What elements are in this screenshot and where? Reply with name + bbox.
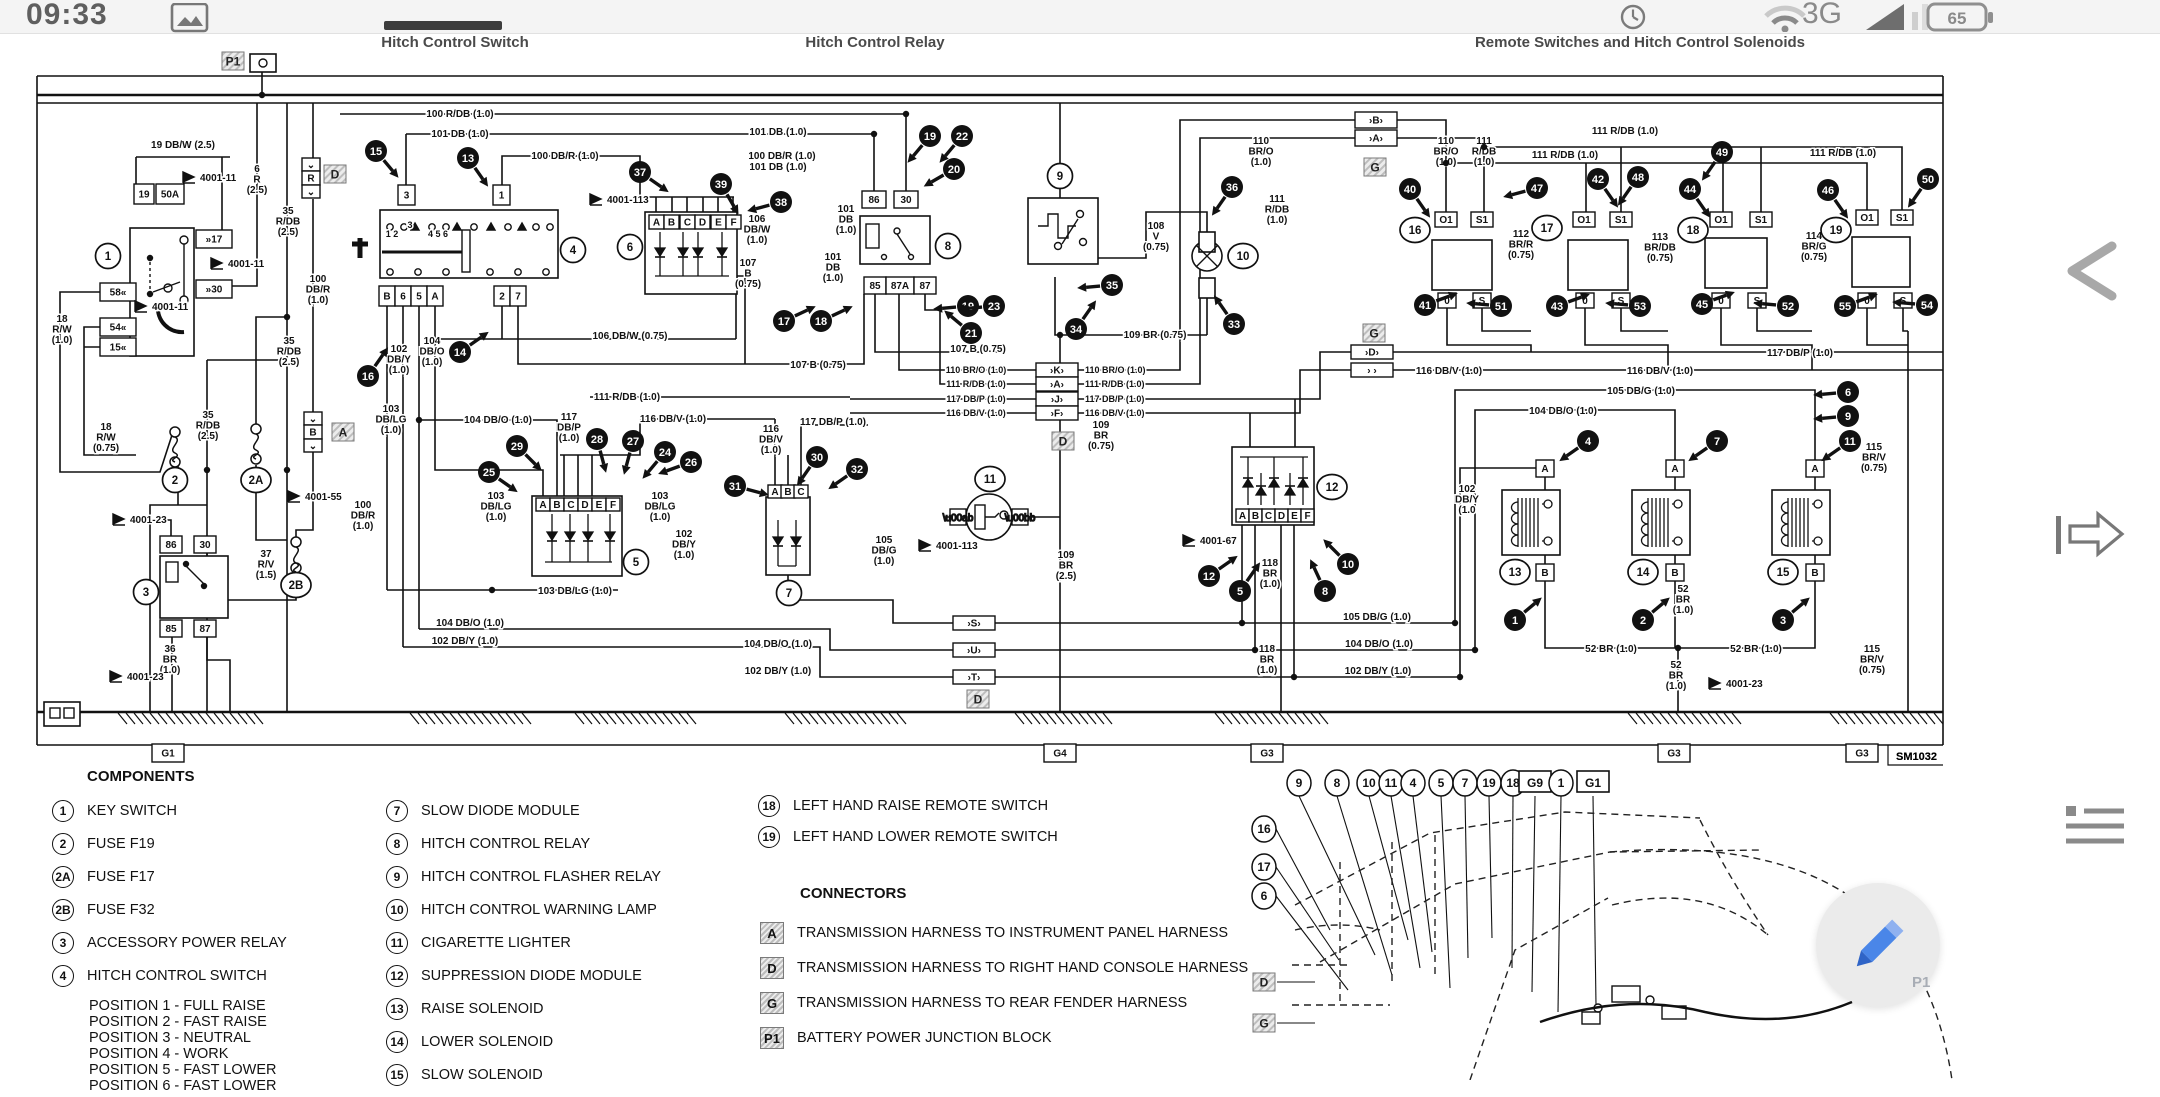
pin-label: B (784, 487, 791, 498)
pin-label: 85 (869, 281, 881, 292)
pin-label: 15« (110, 343, 127, 354)
part-callout-number: 32 (851, 464, 863, 476)
clock-icon (1620, 4, 1648, 32)
component-callout-number: 14 (1637, 567, 1650, 579)
part-callout-number: 21 (965, 328, 977, 340)
connector-tag: G (760, 992, 784, 1014)
wire-label: 111R/DB(1.0) (1265, 194, 1289, 226)
part-callout-number: 26 (685, 457, 697, 469)
wire-label: 19 DB/W (2.5) (151, 140, 215, 151)
junction-dot (416, 417, 422, 423)
wire-label: 104 DB/O (1.0) (1529, 406, 1597, 417)
callout-arrow (1217, 197, 1225, 208)
wire-label: 100 R/DB (1.0) (426, 109, 493, 120)
part-callout-number: 20 (948, 164, 960, 176)
part-callout-number: 15 (370, 146, 382, 158)
leader-line (1512, 796, 1513, 968)
component-callout-number: 19 (1830, 225, 1843, 237)
legend-item: 15SLOW SOLENOID (386, 1064, 661, 1086)
component-callout-number: 10 (1237, 251, 1250, 263)
splice-triangle-icon (110, 671, 122, 682)
component-callout-number: 2A (249, 475, 264, 487)
junction-dot (1452, 620, 1458, 626)
illustration-callout-number: 8 (1334, 776, 1341, 790)
wire-label: 104 DB/O (1.0) (436, 618, 504, 629)
part-callout-number: 8 (1322, 586, 1328, 598)
callout-arrow (1822, 393, 1836, 394)
fuse-end (170, 427, 180, 437)
wire-label: 111R/DB(1.0) (1472, 136, 1496, 168)
callout-arrow (1913, 189, 1921, 200)
pin-label: B (383, 292, 390, 303)
leader-line (1441, 796, 1450, 988)
callout-arrow (1083, 308, 1091, 319)
legend-item-number: 4 (52, 965, 74, 987)
wire-label: 109 BR (0.75) (1124, 330, 1187, 341)
part-callout-number: 30 (811, 452, 823, 464)
wire-label: 116 DB/V (1.0) (1416, 366, 1482, 377)
pin-label: E (1291, 511, 1298, 522)
wire-label: 106 DB/W (0.75) (592, 331, 667, 342)
pin-label: B (1252, 511, 1259, 522)
illustration-callout-number: 7 (1462, 776, 1469, 790)
wire-label: 115BR/V(0.75) (1861, 442, 1887, 474)
wire-label: 117 DB/P (1.0) (1767, 348, 1833, 359)
pin-label: B (1671, 568, 1678, 579)
part-callout-number: 34 (1070, 324, 1083, 336)
pin-label: ›T› (968, 673, 981, 684)
illustration-p1-label: P1 (1912, 974, 1930, 991)
component-callout-number: 1 (105, 251, 112, 263)
callout-arrow (836, 476, 847, 484)
wire-label: 116 DB/V (1.0) (640, 414, 706, 425)
part-callout-number: 49 (1716, 147, 1728, 159)
wire-label: 107 B (0.75) (950, 344, 1006, 355)
connector-legend-item: P1BATTERY POWER JUNCTION BLOCK (760, 1027, 1248, 1049)
pin-label: 54« (110, 323, 127, 334)
pin-label: S1 (1755, 215, 1768, 226)
callout-arrow (1697, 199, 1705, 210)
battery-level: 65 (1948, 9, 1967, 28)
callout-arrow (1829, 448, 1840, 456)
component-callout-number: 8 (945, 241, 952, 253)
pin-label: ›B› (1369, 116, 1383, 127)
connector-legend-item: GTRANSMISSION HARNESS TO REAR FENDER HAR… (760, 992, 1248, 1014)
illustration-callout-number: 1 (1558, 776, 1565, 790)
wire-label: 4001-23 (1726, 679, 1763, 690)
junction-dot (204, 467, 210, 473)
callout-arrow (600, 451, 604, 465)
junction-dot (1291, 674, 1297, 680)
part-callout-number: 48 (1632, 172, 1644, 184)
wire-label: 37R/V(1.5) (256, 549, 277, 581)
pin-label: 30 (199, 540, 211, 551)
chevron-left-icon[interactable] (2072, 246, 2112, 296)
legend-item-number: 7 (386, 800, 408, 822)
connector-tag: D (760, 957, 784, 979)
leader-line (1593, 796, 1596, 1005)
pin-label: S1 (1476, 215, 1489, 226)
connector-tag: P1 (760, 1027, 784, 1049)
ground-symbols (118, 713, 1943, 724)
pin-label: O1 (1714, 215, 1728, 226)
coil-terminal (1544, 500, 1552, 508)
legend-item-number: 12 (386, 965, 408, 987)
leader-line (1558, 796, 1561, 1012)
part-callout-number: 2 (1640, 615, 1646, 627)
connector-tag-label: D (974, 693, 983, 707)
illustration-callout-number: 10 (1362, 776, 1376, 790)
callout-arrowhead (622, 465, 631, 475)
junction-dot (903, 111, 909, 117)
legend-sub-line: POSITION 5 - FAST LOWER (89, 1062, 287, 1078)
connector-label: TRANSMISSION HARNESS TO REAR FENDER HARN… (797, 995, 1187, 1011)
pin-label: A (771, 487, 778, 498)
wire-label: 105 DB/G (1.0) (1607, 386, 1675, 397)
junction-dot (1481, 144, 1487, 150)
callout-arrow (945, 145, 954, 156)
callout-arrowhead (1466, 299, 1475, 308)
svg-text:\u00bb: \u00bb (1005, 513, 1036, 524)
wire-label: 1 2 (386, 229, 399, 239)
pin-label: S1 (1615, 215, 1628, 226)
wire-label: 117DB/P(1.0) (557, 412, 581, 444)
callout-arrow (1614, 304, 1628, 305)
callout-arrow (931, 175, 943, 182)
header-hitch-control-switch: Hitch Control Switch (381, 34, 529, 51)
connector-tag-label: D (1260, 976, 1269, 990)
legend-item: 4HITCH CONTROL SWITCH (52, 965, 287, 987)
wire-label: 112BR/R(0.75) (1508, 229, 1534, 261)
callout-arrow (756, 205, 770, 209)
junction-dot (1675, 645, 1681, 651)
callout-arrowhead (599, 463, 608, 473)
callout-arrow (1822, 417, 1836, 418)
part-callout-number: 38 (775, 197, 787, 209)
part-callout-number: 29 (511, 441, 523, 453)
illustration-callout-number: 5 (1438, 776, 1445, 790)
wire-label: 52BR(1.0) (1666, 660, 1687, 692)
callout-arrow (1762, 304, 1776, 305)
components-column-1: 1KEY SWITCH2FUSE F192AFUSE F172BFUSE F32… (52, 800, 287, 1094)
legend-item: 2BFUSE F32 (52, 899, 287, 921)
wire-label: 104 DB/O (1.0) (1345, 639, 1413, 650)
legend-item-label: HITCH CONTROL RELAY (421, 836, 590, 852)
wire-label: 101 DB (1.0) (431, 129, 488, 140)
status-bar: 09:33 3G 65 (0, 0, 2160, 34)
part-callout-number: 11 (1844, 436, 1856, 448)
wire-label: 110 BR/O (1.0) (1085, 365, 1146, 375)
ground-hatch (1015, 713, 1112, 724)
part-callout-number: 47 (1531, 183, 1543, 195)
legend-sub-line: POSITION 4 - WORK (89, 1046, 287, 1062)
leader-line (1276, 867, 1339, 960)
network-type: 3G (1802, 0, 1842, 31)
wire-label: 111 R/DB (1.0) (1592, 126, 1658, 137)
pin-label: E (596, 500, 603, 511)
wire-label: 116 DB/V (1.0) (1627, 366, 1693, 377)
fuse-end (251, 424, 261, 434)
wire-label: 100 DB/R (1.0) (748, 151, 815, 162)
wire-label: 101 DB (1.0) (749, 127, 806, 138)
part-callout-number: 44 (1684, 184, 1697, 196)
wire-label: 4 5 6 (428, 229, 448, 239)
legend-item-label: HITCH CONTROL WARNING LAMP (421, 902, 657, 918)
wire-label: 35R/DB(2.5) (277, 336, 301, 368)
pin-label: 86 (165, 540, 177, 551)
legend-item: 3ACCESSORY POWER RELAY (52, 932, 287, 954)
components-column-2: 7SLOW DIODE MODULE8HITCH CONTROL RELAY9H… (386, 800, 661, 1097)
callout-arrowhead (1077, 283, 1086, 292)
part-callout-number: 35 (1106, 280, 1118, 292)
pin-label: G3 (1667, 749, 1681, 760)
sheet-code: SM1032 (1896, 751, 1937, 763)
callout-arrow (747, 489, 761, 493)
ground-hatch (118, 713, 263, 724)
callout-arrow (1475, 304, 1489, 305)
illustration-callout-number: 16 (1257, 822, 1271, 836)
junction-dot (284, 314, 290, 320)
connector-tag-label: G (1369, 327, 1378, 341)
wire-label: 103DB/LG(1.0) (480, 491, 511, 523)
callout-arrow (1086, 286, 1100, 287)
legend-item-label: CIGARETTE LIGHTER (421, 935, 571, 951)
callout-arrow (499, 479, 510, 487)
pin-label: A (1239, 511, 1246, 522)
callout-arrow (1417, 199, 1425, 210)
screenshot-icon (170, 3, 210, 33)
pin-label: ⌄ (307, 160, 315, 171)
pin-label: G4 (1053, 749, 1067, 760)
pin-label: A (1541, 464, 1548, 475)
pin-label: G3 (1260, 749, 1274, 760)
connector-tag-label: A (339, 426, 348, 440)
status-time: 09:33 (26, 0, 108, 32)
wire-label: 103 DB/LG (1.0) (538, 586, 612, 597)
part-callout-number: 6 (1845, 387, 1851, 399)
legend-item-number: 9 (386, 866, 408, 888)
pin-label: C (684, 218, 691, 229)
wire-label: 4001-11 (228, 259, 265, 270)
legend-item-number: 19 (758, 826, 780, 848)
pin-label: 30 (900, 195, 912, 206)
callout-arrow (1623, 187, 1631, 198)
callout-arrow (375, 355, 383, 366)
pin-label: ›K› (1050, 366, 1064, 377)
illustration-callout-number: 17 (1257, 860, 1271, 874)
component-callout-number: 17 (1541, 223, 1554, 235)
pin-label: O1 (1439, 215, 1453, 226)
pin-label: 87 (919, 281, 931, 292)
legend-item-label: LEFT HAND RAISE REMOTE SWITCH (793, 798, 1048, 814)
callout-arrow (942, 307, 956, 308)
callout-arrow (650, 179, 661, 187)
connector-legend-item: DTRANSMISSION HARNESS TO RIGHT HAND CONS… (760, 957, 1248, 979)
list-icon[interactable] (2066, 806, 2124, 841)
wire-label: 111 R/DB (1.0) (1532, 150, 1598, 161)
wire-label: 109BR(0.75) (1088, 420, 1114, 452)
legend-item: 1KEY SWITCH (52, 800, 287, 822)
wire-label: 4001-67 (1200, 536, 1237, 547)
pin-label: A (539, 500, 546, 511)
wire-label: 117 DB/P (1.0) (800, 417, 866, 428)
callout-arrow (1219, 561, 1230, 569)
connectors-title: CONNECTORS (800, 885, 906, 902)
legend-item: 2AFUSE F17 (52, 866, 287, 888)
fuse-end (291, 537, 301, 547)
legend-item: 19LEFT HAND LOWER REMOTE SWITCH (758, 826, 1058, 848)
wire-label: 116 DB/V (1.0) (946, 408, 1006, 418)
pin-label: C (1265, 511, 1272, 522)
leader-line (1532, 796, 1535, 992)
pin-label: ›U› (967, 646, 981, 657)
wire-label: 101DB(1.0) (836, 204, 857, 236)
component-callout-number: 2 (172, 475, 178, 487)
ground-hatch (1215, 713, 1328, 724)
part-callout-number: 41 (1419, 300, 1431, 312)
tablet-screenshot: { "status_bar":{ "time":"09:33","network… (0, 0, 2160, 1080)
fuse-symbols (170, 424, 301, 573)
part-callout-number: 53 (1634, 301, 1646, 313)
connector-tag-label: D (331, 168, 340, 182)
part-callout-number: 17 (778, 316, 790, 328)
pin-label: ›A› (1369, 134, 1383, 145)
part-callout-number: 7 (1714, 436, 1720, 448)
part-callout-number: 46 (1822, 185, 1834, 197)
legend-item-number: 1 (52, 800, 74, 822)
schematic-frame (37, 76, 1943, 765)
pin-label: 5 (416, 292, 422, 303)
svg-text:\u00ab: \u00ab (943, 513, 974, 524)
wire-label: 102 DB/Y (1.0) (1345, 666, 1412, 677)
ground-hatch (785, 713, 906, 724)
junction-dot (1472, 647, 1478, 653)
wire-label: 103DB/LG(1.0) (375, 404, 406, 436)
pin-label: A (1811, 464, 1818, 475)
part-callout-number: 42 (1592, 174, 1604, 186)
part-callout-number: 25 (483, 467, 495, 479)
wire-label: 111 R/DB (1.0) (1085, 379, 1145, 389)
coil-terminal (1674, 537, 1682, 545)
part-callout-number: 24 (659, 447, 672, 459)
page-arrow-icon[interactable] (2056, 514, 2122, 554)
pin-label: B (1811, 568, 1818, 579)
legend-item-number: 3 (52, 932, 74, 954)
part-callout-number: 12 (1203, 571, 1215, 583)
legend-item-label: FUSE F32 (87, 902, 155, 918)
wire-label: 107 B (0.75) (790, 360, 846, 371)
wire-label: 102 DB/Y (1.0) (432, 636, 499, 647)
part-callout-number: 37 (634, 167, 646, 179)
pin-label: G3 (1855, 749, 1869, 760)
pin-label: 85 (165, 624, 177, 635)
wire-label: 100DB/R(1.0) (306, 274, 331, 306)
pin-label: ›D› (1365, 348, 1379, 359)
part-callout-number: 3 (1780, 615, 1786, 627)
pin-label: A (653, 218, 660, 229)
wire-label: 52 BR (1.0) (1585, 644, 1637, 655)
wire-label: 108V(0.75) (1143, 221, 1169, 253)
ground-hatch (575, 713, 696, 724)
legend-sub-line: POSITION 3 - NEUTRAL (89, 1030, 287, 1046)
legend-item-number: 10 (386, 899, 408, 921)
wire-label: 104 DB/O (1.0) (464, 415, 532, 426)
part-callout-number: 16 (362, 371, 374, 383)
pin-label: 3 (404, 191, 410, 202)
pin-label: B (553, 500, 560, 511)
wire-label: 52 BR (1.0) (1730, 644, 1782, 655)
illustration-callout-number: 19 (1482, 776, 1496, 790)
component-callout-number: 11 (984, 474, 997, 486)
part-callout-number: 14 (454, 347, 467, 359)
component-callout-number: 16 (1409, 225, 1422, 237)
pin-label: 87A (891, 281, 909, 292)
part-callout-number: 4 (1585, 436, 1592, 448)
callout-arrowhead (747, 204, 757, 213)
leader-line (1276, 896, 1348, 990)
wire-label: 106DB/W(1.0) (744, 214, 771, 246)
callout-arrow (951, 316, 962, 325)
pin-label: › › (1367, 366, 1376, 377)
part-callout-number: 50 (1922, 174, 1934, 186)
legend-item: 2FUSE F19 (52, 833, 287, 855)
pin-label: 1 (499, 191, 505, 202)
wire-label: 35R/DB(2.5) (276, 206, 300, 238)
legend-item-number: 15 (386, 1064, 408, 1086)
pin-label: G1 (161, 749, 175, 760)
part-callout-number: 45 (1696, 299, 1708, 311)
legend-item-number: 18 (758, 795, 780, 817)
pin-label: 87 (199, 624, 211, 635)
pin-label: F (610, 500, 616, 511)
pin-label: D (581, 500, 588, 511)
pin-label: 7 (515, 292, 521, 303)
wire-label: 110 BR/O (1.0) (946, 365, 1007, 375)
legend-item-label: SUPPRESSION DIODE MODULE (421, 968, 642, 984)
legend-item-number: 2A (52, 866, 74, 888)
connector-label: BATTERY POWER JUNCTION BLOCK (797, 1030, 1052, 1046)
part-callout-number: 19 (924, 131, 936, 143)
connectors-list: ATRANSMISSION HARNESS TO INSTRUMENT PANE… (760, 922, 1248, 1062)
ground-hatch (410, 713, 531, 724)
illustration-callout-number: 11 (1385, 776, 1398, 790)
callout-arrow (1835, 200, 1843, 211)
callout-arrow (1901, 303, 1915, 304)
junction-dot (1252, 647, 1258, 653)
wire-label: 100DB/R(1.0) (351, 500, 376, 532)
component-callout-number: 7 (786, 588, 792, 600)
ground-hatch (1830, 713, 1943, 724)
part-callout-number: 54 (1921, 300, 1934, 312)
splice-triangle-icon (183, 172, 195, 183)
pin-label: 6 (400, 292, 406, 303)
pin-label: B (668, 218, 675, 229)
wire-label: 110BR/O(1.0) (1249, 136, 1274, 168)
wire-label: 111 R/DB (1.0) (946, 379, 1006, 389)
connector-tag-label: G (1259, 1017, 1268, 1031)
part-callout-number: 9 (1845, 411, 1851, 423)
leader-line (1489, 796, 1492, 938)
pin-label: C (567, 500, 574, 511)
callout-arrow (1605, 189, 1613, 200)
header-hitch-control-relay: Hitch Control Relay (805, 34, 944, 51)
connector-label: TRANSMISSION HARNESS TO RIGHT HAND CONSO… (797, 960, 1248, 976)
wire-label: 18R/W(0.75) (93, 422, 119, 454)
callout-arrow (475, 168, 483, 179)
legend-item: 12SUPPRESSION DIODE MODULE (386, 965, 661, 987)
part-callout-number: 22 (956, 131, 968, 143)
part-callout-number: 51 (1495, 301, 1507, 313)
